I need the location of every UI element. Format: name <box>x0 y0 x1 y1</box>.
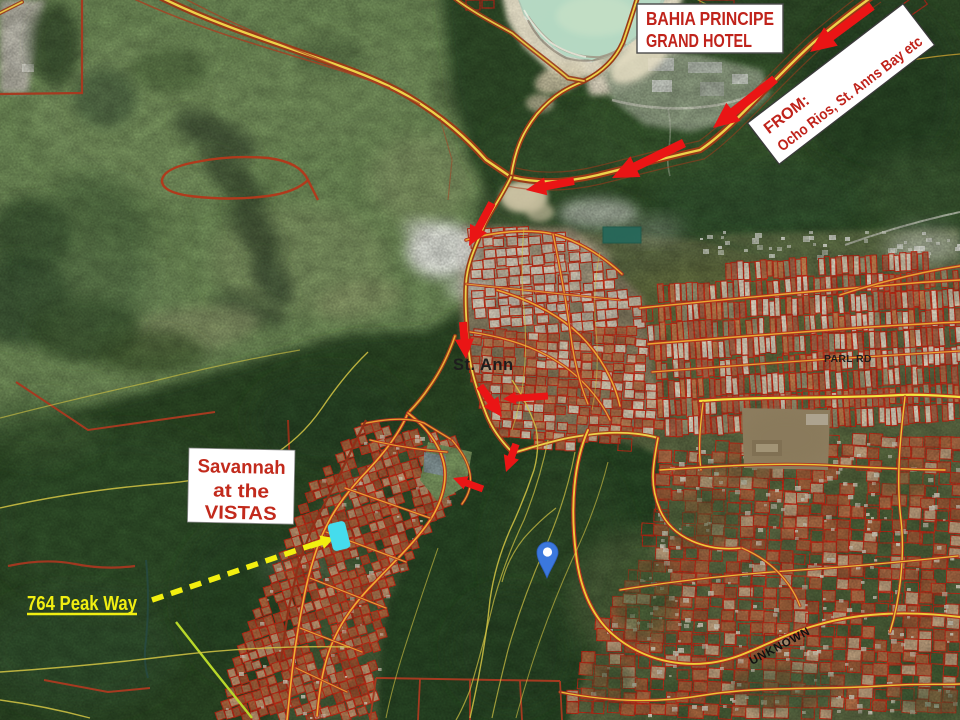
svg-text:PARL RD: PARL RD <box>824 353 872 365</box>
svg-text:VISTAS: VISTAS <box>204 502 276 525</box>
svg-text:Savannah: Savannah <box>197 456 285 479</box>
svg-text:764 Peak Way: 764 Peak Way <box>27 593 138 615</box>
svg-text:St. Ann: St. Ann <box>453 356 514 374</box>
svg-text:GRAND HOTEL: GRAND HOTEL <box>646 31 752 51</box>
svg-text:at the: at the <box>213 481 269 503</box>
svg-text:BAHIA PRINCIPE: BAHIA PRINCIPE <box>646 9 774 29</box>
